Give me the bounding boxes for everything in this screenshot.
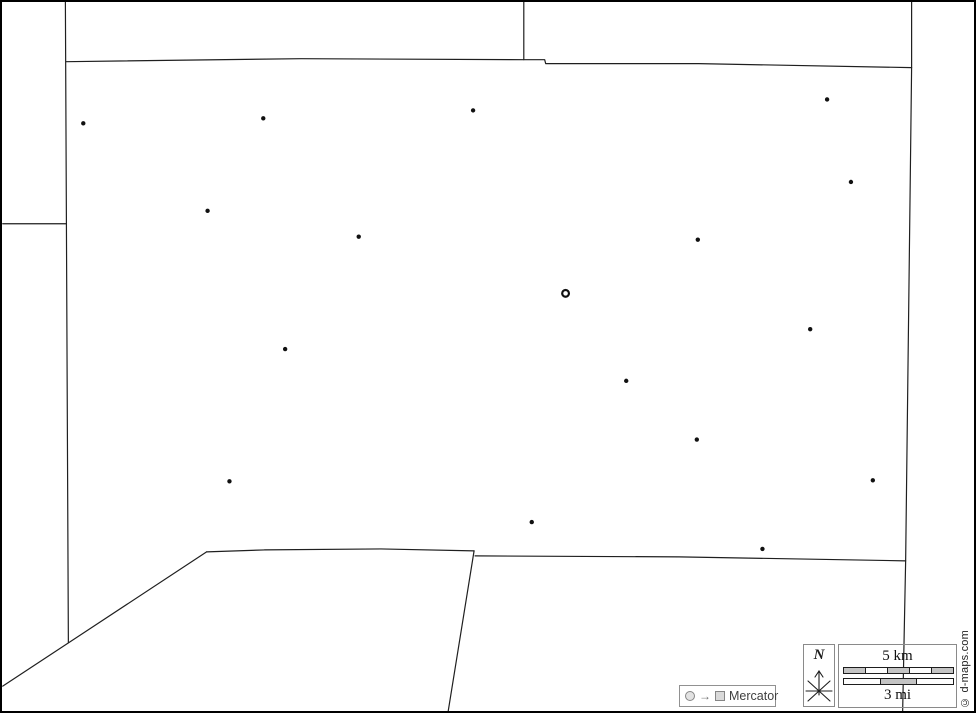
town-dot [696, 237, 700, 241]
boundary-diagonal [3, 552, 207, 686]
town-dot [624, 379, 628, 383]
town-dot [357, 234, 361, 238]
compass-star-icon [804, 664, 834, 705]
boundary-left-vertical [65, 2, 68, 642]
capital-town-ring-marker [562, 290, 569, 297]
north-label: N [814, 646, 825, 664]
town-dot [530, 520, 534, 524]
scale-box: 5 km 3 mi [838, 644, 957, 708]
town-dot [471, 108, 475, 112]
scale-km-label: 5 km [839, 647, 956, 665]
boundary-right-vertical [903, 2, 912, 711]
town-dot [760, 547, 764, 551]
scale-segment [881, 679, 918, 684]
arrow-right-icon: → [699, 690, 711, 702]
boundary-top [66, 59, 911, 68]
scale-segment [844, 679, 881, 684]
scale-segment [910, 668, 932, 673]
town-dot [695, 437, 699, 441]
scale-segment [917, 679, 953, 684]
projection-legend: → Mercator [679, 685, 776, 707]
boundary-bottom-west [207, 549, 474, 552]
town-dot [825, 97, 829, 101]
scale-segment [932, 668, 953, 673]
boundary-bottom-east [475, 556, 906, 561]
map-canvas: → Mercator N 5 km 3 mi © d-maps.com [0, 0, 976, 713]
projection-label: Mercator [729, 690, 778, 703]
map-svg [2, 2, 974, 711]
scale-bar-mi [843, 678, 954, 685]
scale-segment [888, 668, 910, 673]
town-dot [261, 116, 265, 120]
scale-bar-km [843, 667, 954, 674]
boundary-branch-vertical [448, 551, 474, 711]
town-dot [81, 121, 85, 125]
copyright-text: © d-maps.com [958, 639, 973, 708]
town-dot [849, 180, 853, 184]
flat-map-square-icon [715, 691, 725, 701]
town-dot [871, 478, 875, 482]
scale-segment [866, 668, 888, 673]
town-dot [283, 347, 287, 351]
towns-layer [81, 97, 875, 551]
compass-box: N [803, 644, 835, 707]
town-dot [205, 209, 209, 213]
globe-circle-icon [685, 691, 695, 701]
scale-segment [844, 668, 866, 673]
town-dot [808, 327, 812, 331]
scale-mi-label: 3 mi [839, 686, 956, 704]
town-dot [227, 479, 231, 483]
